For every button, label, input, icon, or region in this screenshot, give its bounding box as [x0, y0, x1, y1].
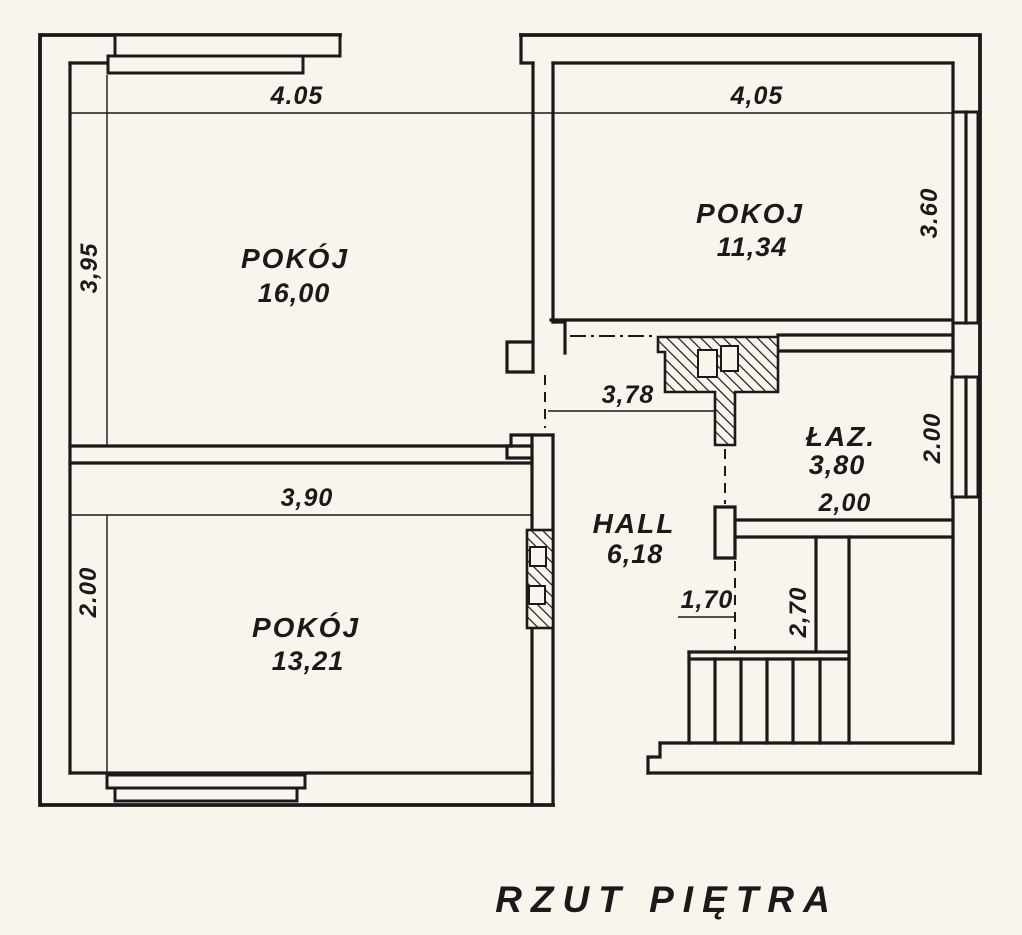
room-area-laz: 3,80 [809, 450, 866, 480]
drawing-title: RZUT PIĘTRA [495, 879, 839, 920]
dim-laz-height: 2.00 [919, 413, 946, 465]
room-area-pokoj2: 11,34 [717, 232, 788, 262]
wall-flue-block [527, 530, 553, 628]
chimney-block [658, 337, 778, 445]
room-area-pokoj1: 16,00 [258, 278, 331, 308]
flue-opening [529, 586, 545, 604]
dim-pokoj1-height: 3,95 [76, 243, 103, 294]
room-label-pokoj1: POKÓJ [241, 243, 349, 274]
room-area-pokoj3: 13,21 [272, 646, 345, 676]
dim-pokoj2-height: 3.60 [916, 188, 943, 239]
dim-pokoj2-width: 4,05 [730, 82, 784, 110]
flue-opening [530, 547, 546, 566]
dim-pokoj1-width: 4.05 [270, 82, 324, 110]
dim-laz-width: 2,00 [818, 489, 872, 517]
outer-walls [40, 35, 980, 805]
room-label-pokoj2: POKOJ [696, 198, 804, 229]
dim-pokoj3-width: 3,90 [281, 484, 334, 512]
room-label-hall: HALL [593, 508, 676, 539]
staircase [648, 537, 953, 773]
dim-stairs-depth: 2,70 [785, 587, 812, 639]
dim-hall-width: 3,78 [602, 381, 655, 409]
flue-opening [721, 346, 738, 371]
room-area-hall: 6,18 [607, 539, 664, 569]
window-bottom-left-outer [107, 775, 305, 788]
window-bottom-left-inner [115, 788, 297, 801]
window-top-left-outer [115, 35, 340, 56]
flue-opening [698, 350, 717, 377]
room-label-laz: ŁAZ. [805, 421, 876, 452]
windows [107, 35, 978, 801]
floor-plan-drawing: 4.05 4,05 3,78 3,90 2,00 1,70 3,95 3.60 … [0, 0, 1022, 935]
dim-pokoj3-height: 2.00 [75, 567, 102, 619]
window-top-left-inner [108, 56, 303, 73]
dim-stairs-width: 1,70 [681, 586, 734, 614]
room-label-pokoj3: POKÓJ [252, 612, 360, 643]
